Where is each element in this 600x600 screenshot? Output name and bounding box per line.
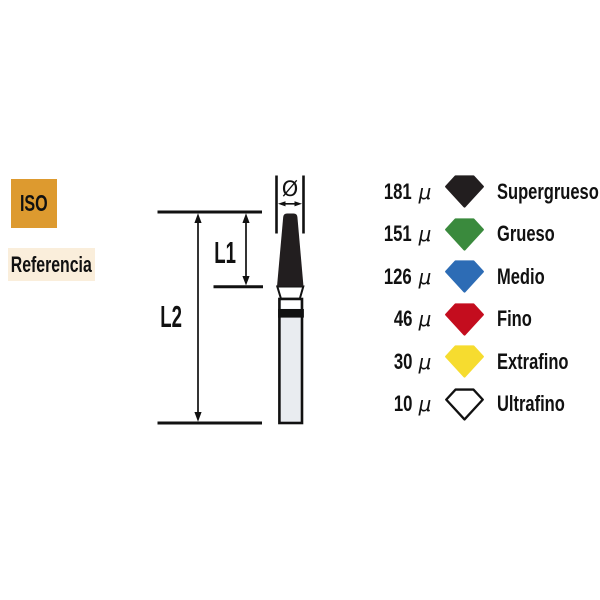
micron-symbol: μ xyxy=(412,392,438,416)
bur-tip-cone xyxy=(277,214,304,287)
micron-symbol: μ xyxy=(412,180,438,204)
grit-diamond-icon xyxy=(445,260,484,293)
grit-size-value: 126 xyxy=(370,264,412,290)
grit-name: Grueso xyxy=(497,221,574,247)
l2-dimension-label: L2 xyxy=(150,301,193,332)
grit-diamond-icon xyxy=(445,345,484,378)
micron-symbol: μ xyxy=(412,307,438,331)
bur-shank-black-band xyxy=(278,309,304,318)
grit-name: Ultrafino xyxy=(497,391,587,417)
grit-name: Fino xyxy=(497,306,543,332)
diameter-extent-arrow xyxy=(278,201,302,206)
bur-neck xyxy=(277,287,303,299)
grit-diamond-icon xyxy=(445,388,484,421)
legend-row: 151 μ Grueso xyxy=(370,213,574,256)
grit-diamond-icon xyxy=(445,303,484,336)
grit-size-value: 30 xyxy=(370,349,412,375)
grit-legend: 181 μ Supergrueso 151 μ Grueso 126 μ Med… xyxy=(370,170,596,430)
legend-row: 181 μ Supergrueso xyxy=(370,170,600,213)
grit-size-value: 10 xyxy=(370,391,412,417)
grit-size-value: 151 xyxy=(370,221,412,247)
micron-symbol: μ xyxy=(412,350,438,374)
l2-extent-arrow xyxy=(194,213,201,422)
dental-bur-spec-diagram: ISO Referencia Ø xyxy=(0,0,600,600)
l1-dimension-label: L1 xyxy=(204,237,246,268)
micron-symbol: μ xyxy=(412,222,438,246)
grit-size-value: 181 xyxy=(370,179,412,205)
legend-row: 30 μ Extrafino xyxy=(370,340,592,383)
bur-shank-white-band xyxy=(281,300,300,308)
grit-name: Medio xyxy=(497,264,561,290)
micron-symbol: μ xyxy=(412,265,438,289)
grit-name: Supergrueso xyxy=(497,179,600,205)
diameter-symbol: Ø xyxy=(282,177,299,201)
grit-diamond-icon xyxy=(445,175,484,208)
legend-row: 10 μ Ultrafino xyxy=(370,383,587,426)
legend-row: 46 μ Fino xyxy=(370,298,543,341)
grit-name: Extrafino xyxy=(497,349,592,375)
legend-row: 126 μ Medio xyxy=(370,255,561,298)
grit-size-value: 46 xyxy=(370,306,412,332)
grit-diamond-icon xyxy=(445,218,484,251)
